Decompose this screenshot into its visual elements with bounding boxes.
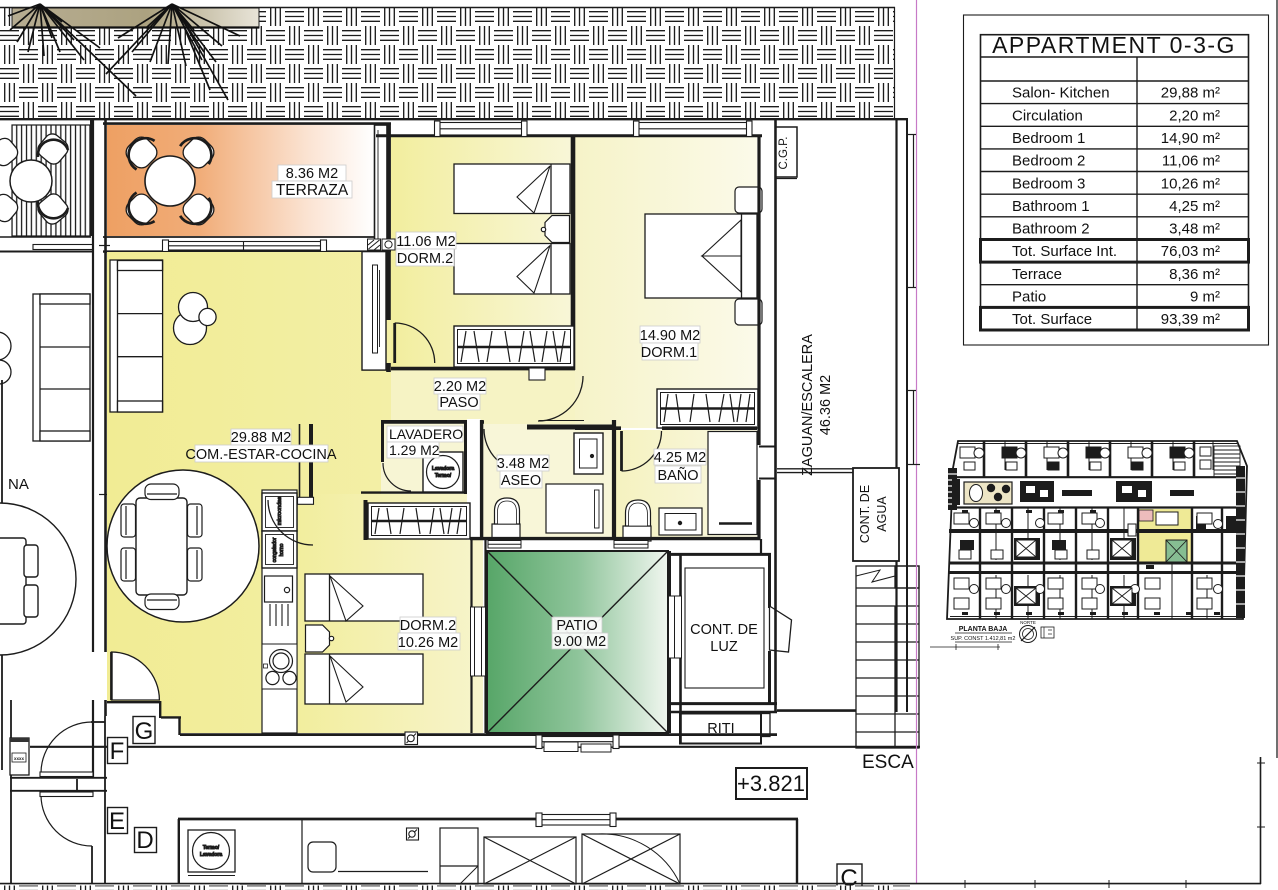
svg-text:Tot. Surface: Tot. Surface: [1012, 311, 1092, 328]
svg-text:29.88 M2: 29.88 M2: [231, 430, 291, 446]
svg-text:Bedroom 3: Bedroom 3: [1012, 175, 1085, 192]
svg-text:congelador: congelador: [272, 537, 278, 562]
svg-text:xxxx: xxxx: [14, 756, 25, 761]
svg-text:Lavadora: Lavadora: [432, 466, 454, 472]
svg-text:microondas: microondas: [277, 497, 283, 526]
svg-text:Salon- Kitchen: Salon- Kitchen: [1012, 85, 1110, 102]
svg-text:SUP. CONST 1.412,81 m2: SUP. CONST 1.412,81 m2: [951, 636, 1016, 642]
svg-text:93,39 m²: 93,39 m²: [1161, 311, 1220, 328]
svg-text:Circulation: Circulation: [1012, 108, 1083, 125]
svg-text:29,88 m²: 29,88 m²: [1161, 85, 1220, 102]
svg-text:DORM.1: DORM.1: [641, 345, 697, 361]
svg-text:2,20 m²: 2,20 m²: [1169, 108, 1220, 125]
svg-text:1.29 M2: 1.29 M2: [389, 442, 440, 458]
svg-text:ASEO: ASEO: [501, 473, 541, 489]
svg-text:11.06 M2: 11.06 M2: [396, 234, 455, 250]
svg-text:ESCA: ESCA: [862, 752, 914, 773]
svg-text:Bedroom 2: Bedroom 2: [1012, 153, 1085, 170]
svg-text:Terrace: Terrace: [1012, 266, 1062, 283]
svg-text:76,03 m²: 76,03 m²: [1161, 243, 1220, 260]
svg-text:ZAGUAN/ESCALERA: ZAGUAN/ESCALERA: [800, 334, 816, 476]
svg-text:BAÑO: BAÑO: [657, 467, 698, 484]
svg-text:14,90 m²: 14,90 m²: [1161, 130, 1220, 147]
svg-text:+3.821: +3.821: [737, 771, 805, 796]
svg-text:Lavadora: Lavadora: [200, 852, 222, 858]
svg-text:9 m²: 9 m²: [1190, 289, 1220, 306]
svg-text:DORM.2: DORM.2: [400, 618, 456, 634]
svg-text:TERRAZA: TERRAZA: [276, 182, 349, 199]
svg-text:horno: horno: [279, 543, 285, 556]
svg-text:9.00 M2: 9.00 M2: [554, 634, 606, 650]
svg-text:3,48 m²: 3,48 m²: [1169, 221, 1220, 238]
svg-text:3.48 M2: 3.48 M2: [497, 456, 549, 472]
svg-text:CONT. DE: CONT. DE: [690, 622, 758, 638]
svg-text:AGUA: AGUA: [875, 496, 889, 532]
svg-text:8,36 m²: 8,36 m²: [1169, 266, 1220, 283]
svg-text:PLANTA BAJA: PLANTA BAJA: [959, 626, 1008, 633]
svg-text:46.36 M2: 46.36 M2: [818, 375, 834, 435]
svg-text:NORTE: NORTE: [1020, 620, 1036, 625]
svg-text:10.26 M2: 10.26 M2: [398, 635, 458, 651]
svg-text:CONT. DE: CONT. DE: [858, 485, 872, 543]
svg-text:2.20 M2: 2.20 M2: [434, 379, 486, 395]
svg-text:LUZ: LUZ: [710, 639, 738, 655]
svg-text:Patio: Patio: [1012, 289, 1046, 306]
svg-text:DORM.2: DORM.2: [397, 251, 453, 267]
svg-text:LAVADERO: LAVADERO: [389, 426, 463, 442]
svg-text:4,25 m²: 4,25 m²: [1169, 198, 1220, 215]
svg-text:E: E: [109, 808, 125, 835]
svg-text:D: D: [136, 827, 153, 854]
svg-text:PASO: PASO: [439, 395, 478, 411]
svg-text:4.25 M2: 4.25 M2: [654, 450, 706, 466]
svg-text:Tot. Surface Int.: Tot. Surface Int.: [1012, 243, 1117, 260]
svg-text:APPARTMENT 0-3-G: APPARTMENT 0-3-G: [992, 32, 1236, 58]
svg-text:PATIO: PATIO: [556, 618, 597, 634]
svg-text:COM.-ESTAR-COCINA: COM.-ESTAR-COCINA: [185, 447, 337, 463]
svg-text:Bathroom 1: Bathroom 1: [1012, 198, 1090, 215]
svg-text:14.90 M2: 14.90 M2: [640, 328, 700, 344]
svg-text:10,26 m²: 10,26 m²: [1161, 175, 1220, 192]
svg-text:G: G: [135, 718, 154, 745]
svg-text:F: F: [110, 738, 125, 765]
svg-text:Bathroom 2: Bathroom 2: [1012, 221, 1090, 238]
svg-text:Bedroom 1: Bedroom 1: [1012, 130, 1085, 147]
svg-text:Termo/: Termo/: [435, 473, 452, 479]
svg-text:Termo/: Termo/: [203, 845, 220, 851]
svg-text:11,06 m²: 11,06 m²: [1162, 153, 1220, 170]
svg-text:C.G.P.: C.G.P.: [778, 136, 790, 169]
svg-text:NA: NA: [8, 476, 29, 493]
svg-text:8.36 M2: 8.36 M2: [286, 166, 338, 182]
